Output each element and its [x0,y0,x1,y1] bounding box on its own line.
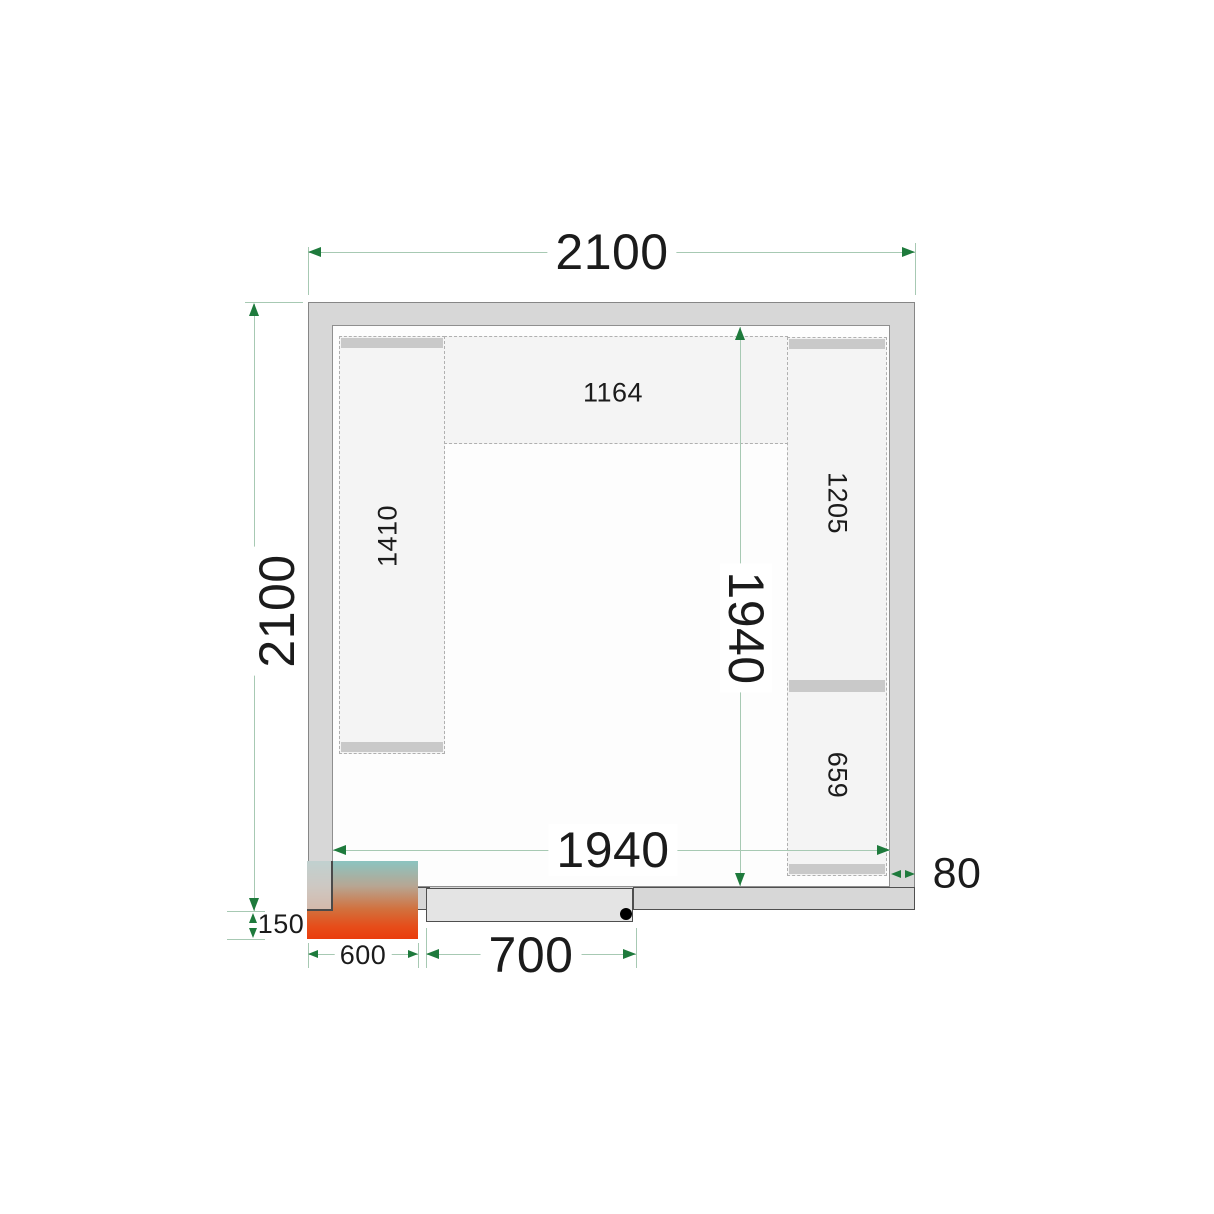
arrow-left-icon [333,845,346,855]
extension-line [636,928,637,968]
shelf-band [789,864,885,874]
outer-depth-label: 2100 [251,546,303,675]
inner-width-label: 1940 [548,824,677,876]
arrow-right-icon [902,247,915,257]
extension-line [426,928,427,968]
outer-width-label: 2100 [547,226,676,278]
floor-plan-canvas: 1164 1410 1205 659 2100 2100 1940 1940 8… [0,0,1214,1214]
door-leaf [426,888,633,922]
shelf-right-lower-length-label: 659 [822,752,853,799]
door-width-label: 700 [481,929,582,981]
shelf-band [341,742,443,752]
shelf-band [789,339,885,349]
extension-line [227,939,265,940]
door-hinge-dot [620,908,632,920]
arrow-left-icon [891,870,901,878]
arrow-right-icon [905,870,915,878]
cooling-unit-wall-overlap [307,861,333,911]
arrow-right-icon [408,950,418,958]
bottom-wall-right-segment [633,887,915,910]
arrow-left-icon [308,950,318,958]
shelf-band [341,338,443,348]
shelf-left-length-label: 1410 [373,505,404,567]
arrow-up-icon [735,327,745,340]
shelf-right-upper-length-label: 1205 [822,472,853,534]
extension-line [915,243,916,295]
arrow-up-icon [249,303,259,316]
unit-width-label: 600 [335,941,392,969]
arrow-right-icon [877,845,890,855]
arrow-right-icon [623,949,636,959]
inner-depth-label: 1940 [720,563,772,692]
extension-line [418,943,419,968]
arrow-left-icon [308,247,321,257]
unit-protrusion-label: 150 [253,910,310,938]
wall-thickness-label: 80 [929,852,986,897]
arrow-left-icon [426,949,439,959]
shelf-top-length-label: 1164 [583,378,643,409]
arrow-down-icon [735,873,745,886]
shelf-band [789,680,885,692]
